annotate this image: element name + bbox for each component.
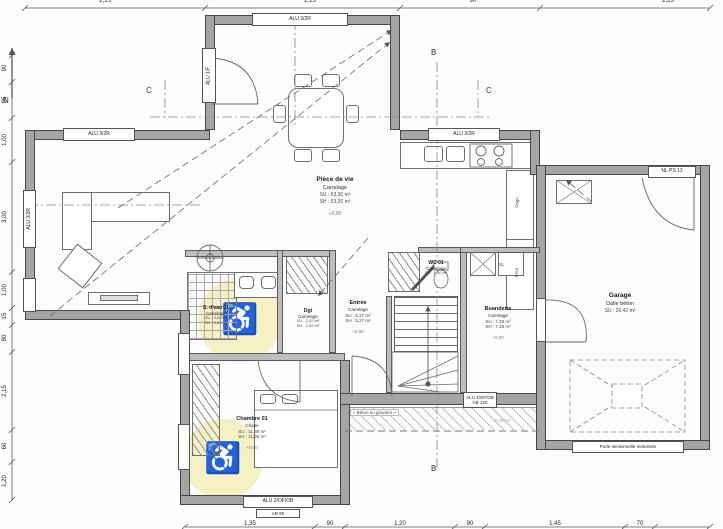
- kitchen-sink: [424, 146, 443, 162]
- room-label-bedroom: Chambre 01 Chape SU : 11,38 m² SH : 11,3…: [212, 416, 292, 450]
- dressing-wardrobe: [286, 256, 328, 294]
- fridge-unit: [506, 170, 534, 240]
- kitchen-counter: [400, 142, 535, 169]
- kitchen-sink: [446, 146, 465, 162]
- dim-label: 90: [2, 65, 8, 72]
- window-living-side-2: [23, 278, 36, 312]
- room-label-laundry: Buanderie Carrelage SU : 7,28 m² SH : 7,…: [458, 306, 538, 340]
- section-marker-c-right: C: [486, 86, 492, 95]
- window-bedroom: ALU 2/OF/OB: [243, 496, 313, 508]
- washbasin: [239, 276, 254, 289]
- tv: [100, 295, 138, 301]
- window-kitchen: ALU 3/2R: [428, 128, 500, 141]
- dim-label: 90: [467, 521, 474, 527]
- partition: [418, 247, 466, 253]
- chair: [273, 105, 286, 123]
- partition: [185, 353, 345, 361]
- dim-label: 1,45: [549, 521, 561, 527]
- section-marker-b-top: B: [431, 48, 436, 57]
- chair: [294, 149, 312, 162]
- oven-label: Four: [514, 268, 519, 277]
- room-label-living: Pièce de vieCarrelage SU : 53,30 m²SH : …: [290, 176, 380, 217]
- room-label-bathroom: S. d'eau 01 Carrelage SU : 4,60 m² SH : …: [190, 305, 242, 326]
- stair-run: [394, 296, 458, 352]
- fridge-label: Frigo: [515, 197, 520, 207]
- garage-door: Porte sectionnelle motorisée: [572, 441, 684, 453]
- dim-label: 60: [2, 443, 8, 450]
- partition: [185, 250, 335, 257]
- dryer: SL: [498, 252, 524, 276]
- section-marker-c-left: C: [146, 86, 152, 95]
- wall-segment: [25, 310, 185, 320]
- dim-label: 80: [2, 335, 8, 342]
- floor-plan: ♿ ♿ ALU 3/2R ALU 1/F ALU 3/2R ALU 3/2R A…: [0, 0, 723, 529]
- wall-segment: [340, 393, 546, 405]
- wall-segment: [700, 165, 710, 450]
- dim-label: 3,00: [2, 211, 8, 223]
- partition: [277, 250, 283, 353]
- dim-label: 1,35: [244, 521, 256, 527]
- terrace-note: « Béton ou graviers »: [350, 409, 399, 416]
- dim-label: 90: [327, 521, 334, 527]
- section-marker-b-bottom: B: [431, 464, 436, 473]
- door-garage-service: NL PS 13: [648, 166, 696, 178]
- water-heater: [556, 180, 592, 204]
- chair: [294, 74, 312, 87]
- chair: [322, 74, 340, 87]
- terrace-note-2: À définir: [494, 418, 511, 423]
- dim-label: 1,00: [2, 284, 8, 296]
- dim-label: 90: [470, 0, 477, 4]
- sofa-chaise: [62, 192, 92, 250]
- window-living-side: ALU 3/2R: [23, 190, 36, 248]
- door-bay-side: ALU 1/F: [202, 48, 216, 103]
- pillow: [260, 394, 276, 404]
- dim-label: 95: [2, 97, 8, 104]
- dim-label: 2,13: [662, 0, 674, 4]
- armchair: [58, 244, 103, 289]
- window-entry: ALU 2/OF/OBAB 120: [463, 392, 497, 408]
- room-label-entry: Entrée Carrelage SU : 5,27 m² SH : 5,27 …: [334, 300, 382, 334]
- partition: [386, 296, 392, 393]
- window-bay-top: ALU 3/2R: [252, 13, 348, 26]
- dim-label: 2,15: [2, 385, 8, 397]
- window-living-top: ALU 3/2R: [63, 128, 135, 141]
- washing-machine: [470, 252, 496, 276]
- chair: [322, 149, 340, 162]
- window-bathroom-side: [178, 333, 190, 375]
- dim-label: 70: [637, 521, 644, 527]
- window-bedroom-sub: AB 90: [256, 509, 300, 518]
- dim-label: 1,20: [394, 521, 406, 527]
- wall-segment: [340, 360, 350, 505]
- window-bedroom-side: [178, 424, 190, 470]
- dim-label: 2,13: [99, 0, 111, 4]
- washbasin: [261, 276, 276, 289]
- room-label-garage: GarageDalle béton SU : 26,42 m²: [575, 292, 665, 315]
- dim-label: 2,13: [304, 0, 316, 4]
- partition: [460, 247, 540, 253]
- room-label-wc: WC 01 Carrelage SU : 1,50 m²: [412, 260, 460, 276]
- dim-label: 1,00: [2, 134, 8, 146]
- dim-label: 15: [2, 313, 8, 320]
- chair: [346, 105, 359, 123]
- pillow: [282, 394, 298, 404]
- dryer-label: SL: [499, 262, 505, 267]
- dining-table: [288, 88, 344, 148]
- wall-segment: [390, 15, 400, 130]
- room-label-dressing: Dgt Carrelage SU : 2,02 m² SH : 2,02 m²: [286, 308, 330, 329]
- dim-label: 1,20: [2, 475, 8, 487]
